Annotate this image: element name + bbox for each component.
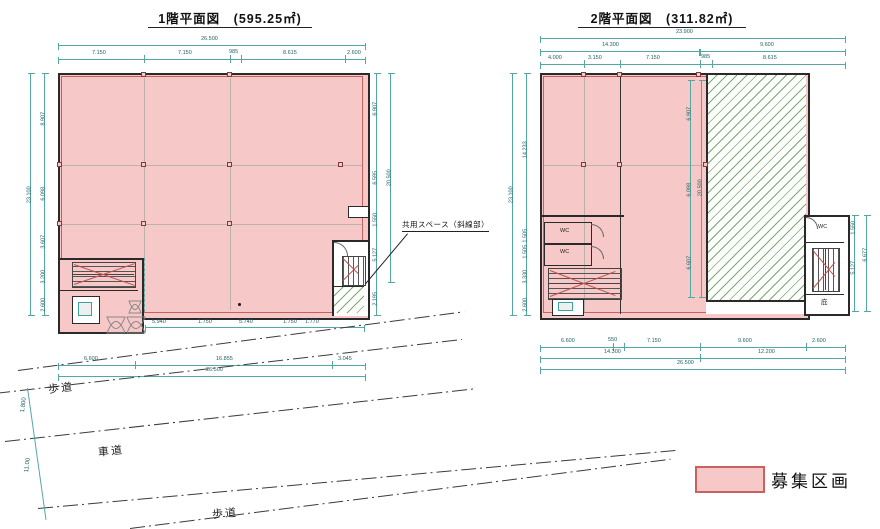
road-label-sidewalk-top: 歩道	[47, 378, 75, 397]
stair-rail	[825, 248, 826, 290]
floor2-title: 2階平面図 (311.82㎡)	[552, 8, 772, 27]
dim-tick	[712, 60, 713, 68]
dim-label: 1.750	[198, 320, 212, 326]
dim-label: 6.677	[863, 238, 869, 272]
dimension-line	[540, 347, 846, 348]
column-marker	[703, 162, 708, 167]
dim-tick	[806, 343, 807, 351]
double-door-icon	[128, 300, 142, 314]
dim-label: 1.550	[373, 203, 379, 237]
dim-label: 14.300	[604, 350, 621, 356]
dim-label: 6.098	[687, 173, 693, 207]
dim-label: 2.600	[523, 288, 529, 322]
dimension-line	[700, 51, 846, 52]
grid-line	[62, 165, 362, 166]
dim-label: 26.500	[201, 37, 218, 43]
elevator-car	[78, 302, 92, 316]
dimension-line	[540, 358, 846, 359]
dim-label: 3.607	[41, 225, 47, 259]
wall	[60, 290, 138, 291]
dim-label: 20.500	[387, 161, 393, 195]
room-label: WC	[560, 250, 569, 256]
room-label: 庇	[821, 300, 828, 307]
dim-label: 16.855	[216, 357, 233, 363]
column-marker	[581, 162, 586, 167]
dim-label: 1.550	[851, 211, 857, 245]
dim-label: 2.600	[41, 288, 47, 322]
column-marker	[57, 162, 62, 167]
dimension-line	[540, 38, 846, 39]
elevator-car	[558, 302, 573, 311]
dim-tick	[700, 354, 701, 362]
column-marker	[617, 72, 622, 77]
double-door-icon	[106, 316, 126, 334]
dim-label: 20.500	[698, 171, 704, 205]
floor1-common-space-hatch	[334, 286, 364, 313]
dim-tick	[332, 361, 333, 369]
road-boundary-line	[130, 459, 671, 529]
dim-label: 26.500	[677, 361, 694, 367]
grid-line-dashed	[144, 258, 145, 312]
floor1-title-underline	[148, 27, 312, 28]
dim-tick	[135, 361, 136, 369]
double-door-icon	[126, 316, 146, 334]
room-label: WC	[560, 229, 569, 235]
dim-label: 8.615	[283, 51, 297, 57]
dim-label: 1.750	[283, 320, 297, 326]
dim-tick	[230, 55, 231, 63]
dim-label: 6.600	[561, 339, 575, 345]
room-label: WC	[818, 225, 827, 231]
dimension-line	[58, 45, 366, 46]
floor2-title-underline	[578, 27, 746, 28]
dim-label: 6.907	[373, 92, 379, 126]
dim-label: 23.100	[509, 178, 515, 212]
dim-tick	[584, 60, 585, 68]
dim-label: 7.150	[646, 56, 660, 62]
wall	[806, 294, 844, 295]
legend-label: 募集区画	[771, 467, 851, 492]
dim-label: 7.150	[647, 339, 661, 345]
wall	[540, 215, 624, 217]
dim-label: 9.600	[760, 43, 774, 49]
dim-label: 2.600	[347, 51, 361, 57]
dim-label: 5.127	[851, 251, 857, 285]
floorplan-drawing: 1階平面図 (595.25㎡) 26.500	[0, 0, 880, 529]
dimension-line	[540, 64, 846, 65]
survey-dot	[238, 303, 241, 306]
grid-line	[62, 224, 362, 225]
dim-label: 23.100	[27, 178, 33, 212]
dim-label: 7.150	[178, 51, 192, 57]
floor2-common-space-hatch	[706, 75, 806, 300]
grid-line	[230, 78, 231, 310]
dim-label: 2.600	[812, 339, 826, 345]
dim-label: 3.045	[338, 357, 352, 363]
floor1-title: 1階平面図 (595.25㎡)	[120, 8, 340, 27]
dim-label: 5.940	[152, 320, 166, 326]
road-label-roadway: 車道	[97, 441, 125, 460]
dimension-line	[540, 51, 700, 52]
dim-label: 985	[701, 55, 710, 61]
road-label-sidewalk-bottom: 歩道	[211, 504, 238, 522]
dim-tick	[144, 55, 145, 63]
dim-label: 4.000	[548, 56, 562, 62]
column-marker	[141, 162, 146, 167]
dim-label: 14.233	[523, 133, 529, 167]
dimension-line	[540, 369, 846, 370]
legend-swatch	[695, 466, 765, 493]
road-boundary-line	[38, 450, 675, 509]
dim-tick	[241, 55, 242, 63]
column-marker	[141, 221, 146, 226]
grid-line	[544, 165, 704, 166]
column-marker	[696, 72, 701, 77]
common-space-note: 共用スペース（斜線部）	[402, 219, 489, 232]
column-marker	[227, 72, 232, 77]
dimension-line	[58, 365, 366, 366]
dim-label: 550	[608, 338, 617, 344]
column-marker	[617, 162, 622, 167]
dim-label: 12.200	[758, 350, 775, 356]
dim-label: 2.195	[373, 282, 379, 316]
road-boundary-line	[5, 388, 474, 442]
column-marker	[141, 72, 146, 77]
dim-tick	[700, 60, 701, 68]
column-marker	[338, 162, 343, 167]
dim-label: 14.300	[602, 43, 619, 49]
dim-label: 6.607	[687, 246, 693, 280]
dim-tick	[345, 55, 346, 63]
wall	[706, 300, 804, 302]
dim-tick	[620, 60, 621, 68]
road-width-dimension-line	[27, 388, 47, 520]
column-marker	[227, 221, 232, 226]
dim-tick	[700, 343, 701, 351]
dim-label: 23.900	[676, 30, 693, 36]
dimension-line	[58, 376, 366, 377]
dim-label: 3.150	[588, 56, 602, 62]
dim-label: 9.600	[738, 339, 752, 345]
dim-label: 6.098	[41, 177, 47, 211]
dim-label: 985	[229, 50, 238, 56]
dim-tick	[624, 343, 625, 351]
dim-label: 6.595	[373, 161, 379, 195]
column-marker	[581, 72, 586, 77]
floor1-wall-notch	[348, 206, 369, 218]
dim-label: 5.740	[239, 320, 253, 326]
dim-label: 8.907	[41, 102, 47, 136]
floor2-lower-void	[706, 302, 804, 314]
dim-label: 1.770	[305, 320, 319, 326]
dim-label: 7.150	[92, 51, 106, 57]
dim-label: 8.615	[763, 56, 777, 62]
column-marker	[227, 162, 232, 167]
wall	[806, 242, 844, 243]
dim-label: 1.800	[20, 397, 28, 413]
column-marker	[57, 221, 62, 226]
dimension-line	[58, 59, 366, 60]
dim-label: 6.907	[687, 97, 693, 131]
dim-label: 11.00	[24, 458, 32, 473]
